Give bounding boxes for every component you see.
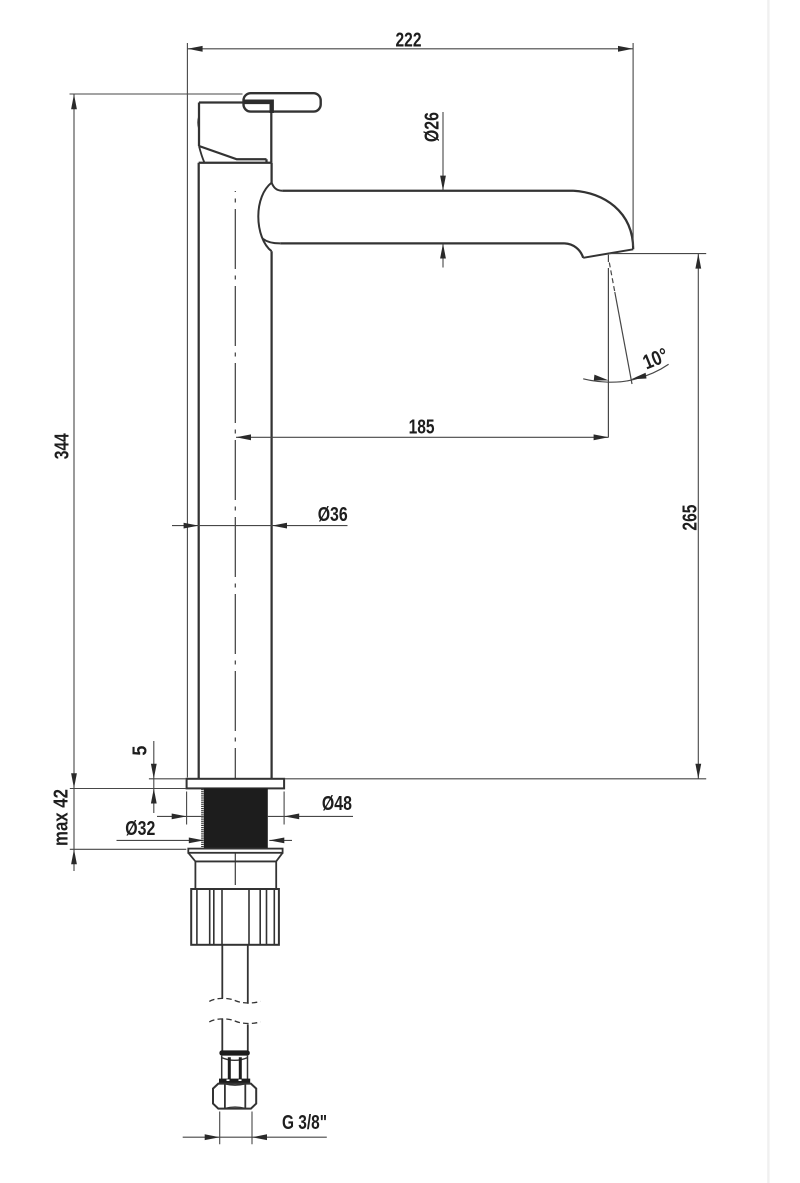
svg-text:Ø48: Ø48 bbox=[322, 792, 352, 815]
svg-text:Ø36: Ø36 bbox=[318, 503, 348, 526]
svg-text:G 3/8": G 3/8" bbox=[282, 1111, 327, 1134]
svg-text:10°: 10° bbox=[640, 344, 672, 375]
svg-text:185: 185 bbox=[409, 416, 435, 439]
svg-text:Ø32: Ø32 bbox=[125, 817, 155, 840]
svg-text:265: 265 bbox=[679, 505, 702, 531]
svg-text:344: 344 bbox=[50, 433, 73, 459]
svg-text:222: 222 bbox=[396, 28, 422, 51]
svg-text:max 42: max 42 bbox=[50, 789, 73, 846]
svg-text:Ø26: Ø26 bbox=[421, 112, 444, 142]
svg-text:5: 5 bbox=[128, 746, 151, 756]
